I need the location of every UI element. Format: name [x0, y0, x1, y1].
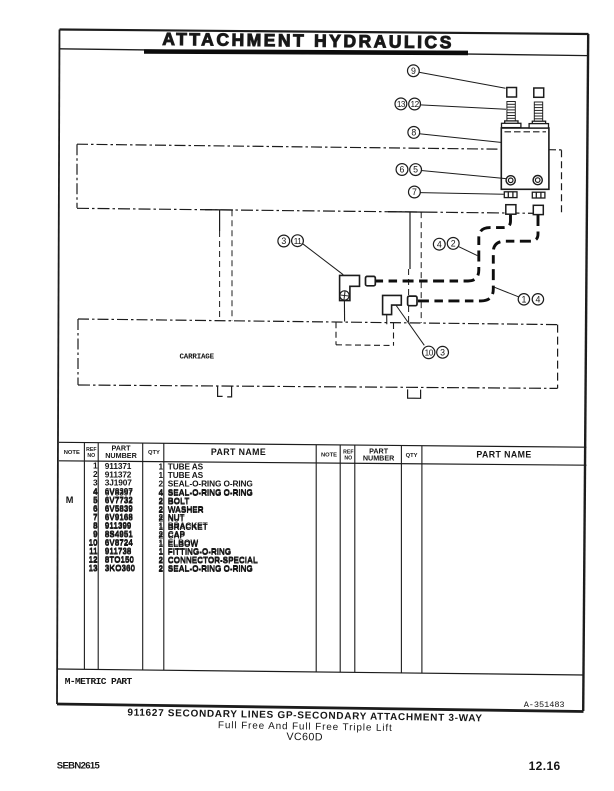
svg-text:9: 9: [411, 66, 416, 76]
svg-text:10: 10: [425, 349, 434, 358]
svg-text:2: 2: [159, 564, 164, 574]
svg-text:6: 6: [400, 165, 405, 175]
svg-text:1: 1: [521, 294, 526, 304]
svg-text:SEBN2615: SEBN2615: [57, 761, 101, 772]
svg-text:NUMBER: NUMBER: [105, 451, 137, 460]
svg-text:SEAL-O-RING O-RING: SEAL-O-RING O-RING: [168, 564, 253, 574]
svg-text:CARRIAGE: CARRIAGE: [180, 353, 215, 361]
svg-text:PART NAME: PART NAME: [211, 447, 266, 457]
svg-text:12: 12: [411, 100, 420, 109]
svg-text:NO: NO: [87, 453, 95, 459]
svg-text:M: M: [66, 495, 74, 505]
svg-text:2: 2: [451, 239, 456, 249]
svg-text:3KO360: 3KO360: [105, 564, 136, 574]
svg-text:13: 13: [397, 100, 406, 109]
svg-text:A-351483: A-351483: [524, 700, 565, 710]
svg-text:11: 11: [294, 237, 302, 246]
svg-text:NUMBER: NUMBER: [363, 454, 395, 463]
svg-text:PART NAME: PART NAME: [476, 450, 531, 460]
svg-text:3: 3: [281, 236, 286, 246]
svg-text:8: 8: [411, 128, 416, 138]
svg-text:4: 4: [437, 239, 442, 249]
svg-text:NO: NO: [344, 456, 352, 462]
svg-text:NOTE: NOTE: [64, 450, 80, 456]
svg-text:13: 13: [89, 564, 98, 574]
svg-text:QTY: QTY: [148, 450, 160, 456]
svg-text:3: 3: [440, 348, 445, 358]
svg-text:VC60D: VC60D: [286, 731, 323, 744]
svg-text:12.16: 12.16: [529, 759, 561, 773]
svg-text:NOTE: NOTE: [321, 453, 337, 459]
svg-text:M-METRIC PART: M-METRIC PART: [65, 676, 133, 687]
svg-text:ATTACHMENT HYDRAULICS: ATTACHMENT HYDRAULICS: [162, 29, 454, 52]
svg-text:QTY: QTY: [406, 453, 418, 459]
svg-text:7: 7: [412, 187, 417, 197]
svg-text:5: 5: [413, 165, 418, 175]
svg-text:4: 4: [535, 294, 540, 304]
